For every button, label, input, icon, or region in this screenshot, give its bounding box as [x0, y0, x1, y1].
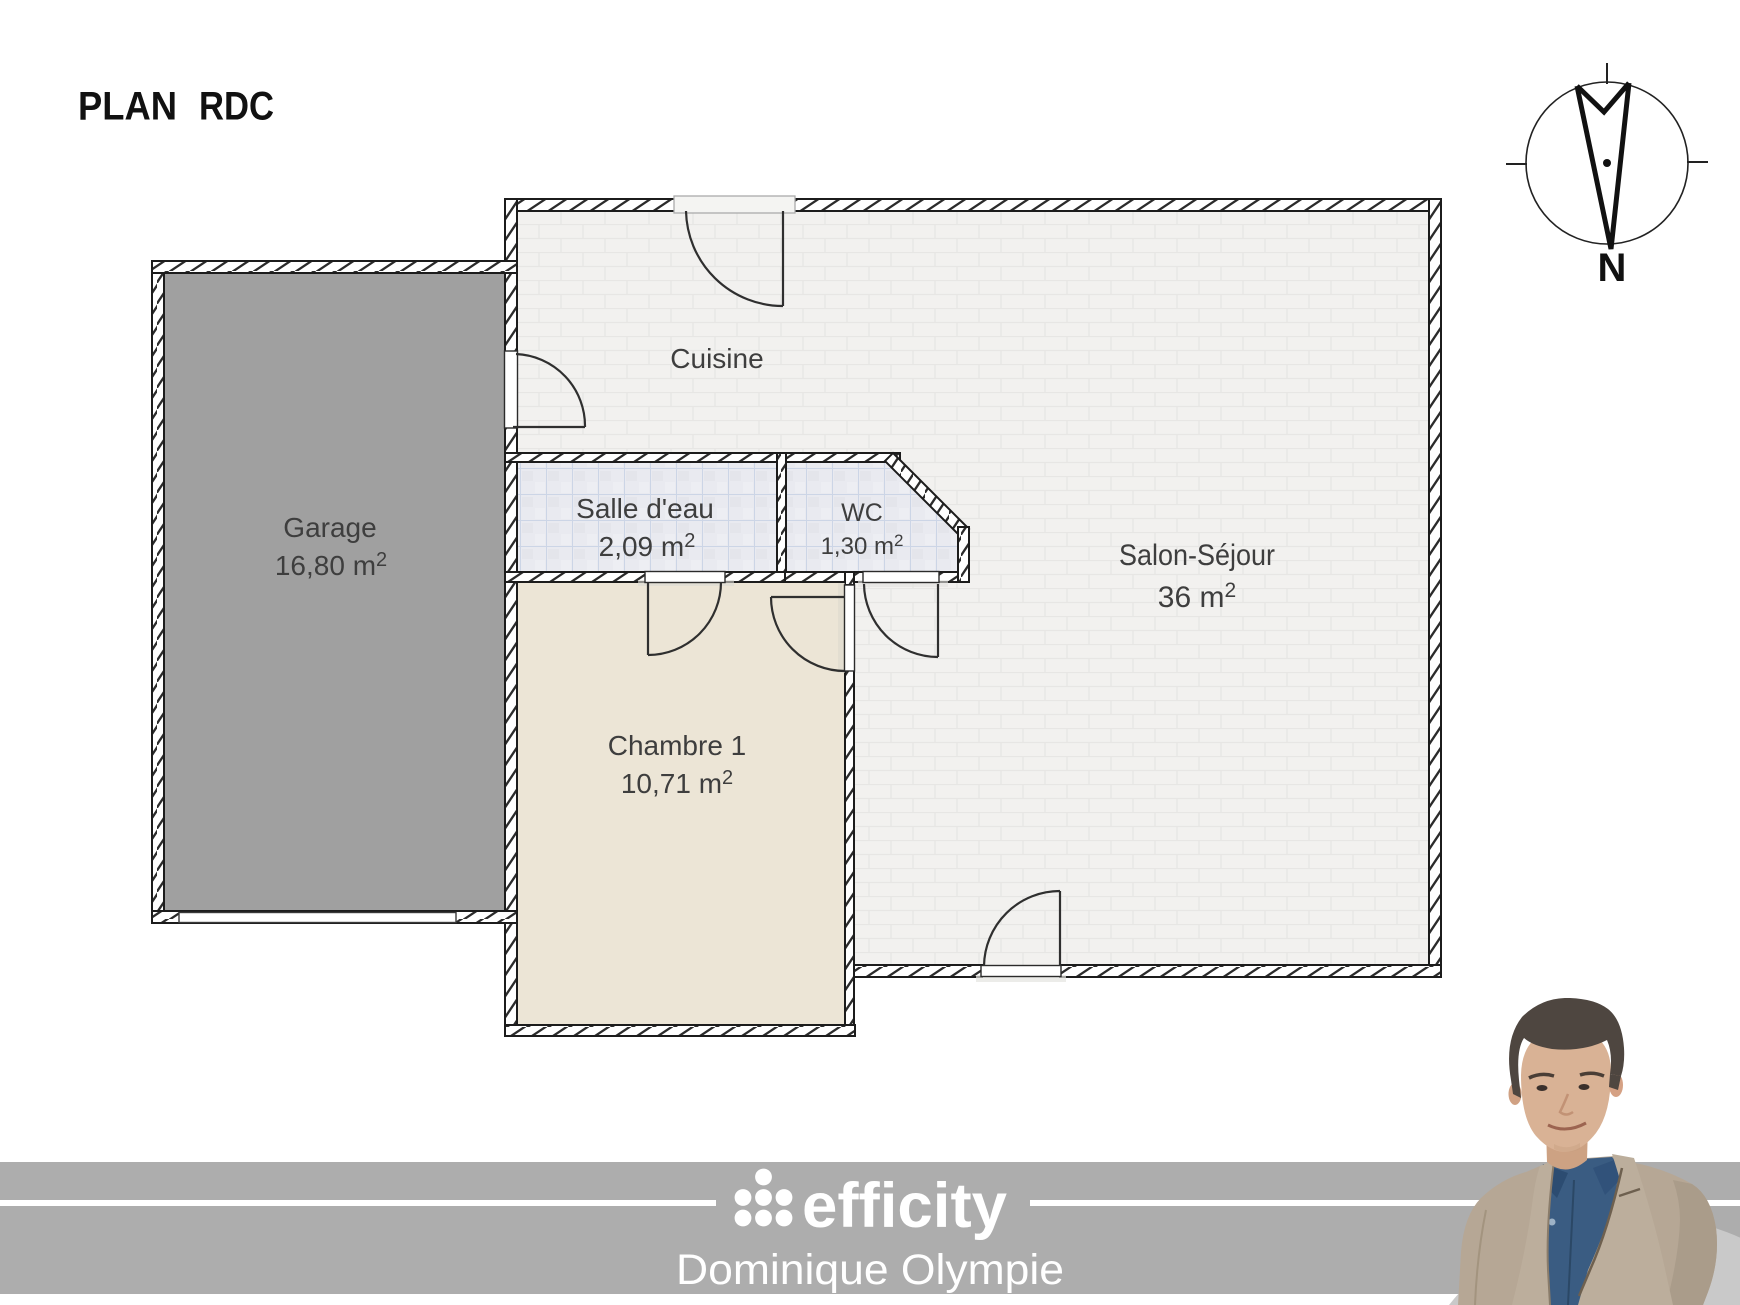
svg-text:Dominique Olympie: Dominique Olympie	[676, 1246, 1064, 1294]
svg-text:36 m2: 36 m2	[1158, 579, 1236, 614]
svg-text:Garage: Garage	[283, 512, 376, 543]
svg-text:WC: WC	[841, 499, 883, 527]
svg-text:10,71 m2: 10,71 m2	[621, 767, 733, 799]
svg-text:Chambre 1: Chambre 1	[608, 730, 747, 761]
svg-text:N: N	[1598, 246, 1627, 290]
svg-text:2,09 m2: 2,09 m2	[599, 530, 696, 562]
svg-text:efficity: efficity	[802, 1171, 1007, 1241]
svg-text:PLAN: PLAN	[78, 85, 177, 129]
svg-text:1,30 m2: 1,30 m2	[821, 531, 904, 560]
svg-text:Salle d'eau: Salle d'eau	[576, 493, 714, 524]
svg-text:16,80 m2: 16,80 m2	[275, 549, 387, 581]
svg-text:Salon-Séjour: Salon-Séjour	[1119, 539, 1275, 572]
svg-text:Cuisine: Cuisine	[670, 343, 763, 374]
svg-text:RDC: RDC	[199, 85, 274, 129]
